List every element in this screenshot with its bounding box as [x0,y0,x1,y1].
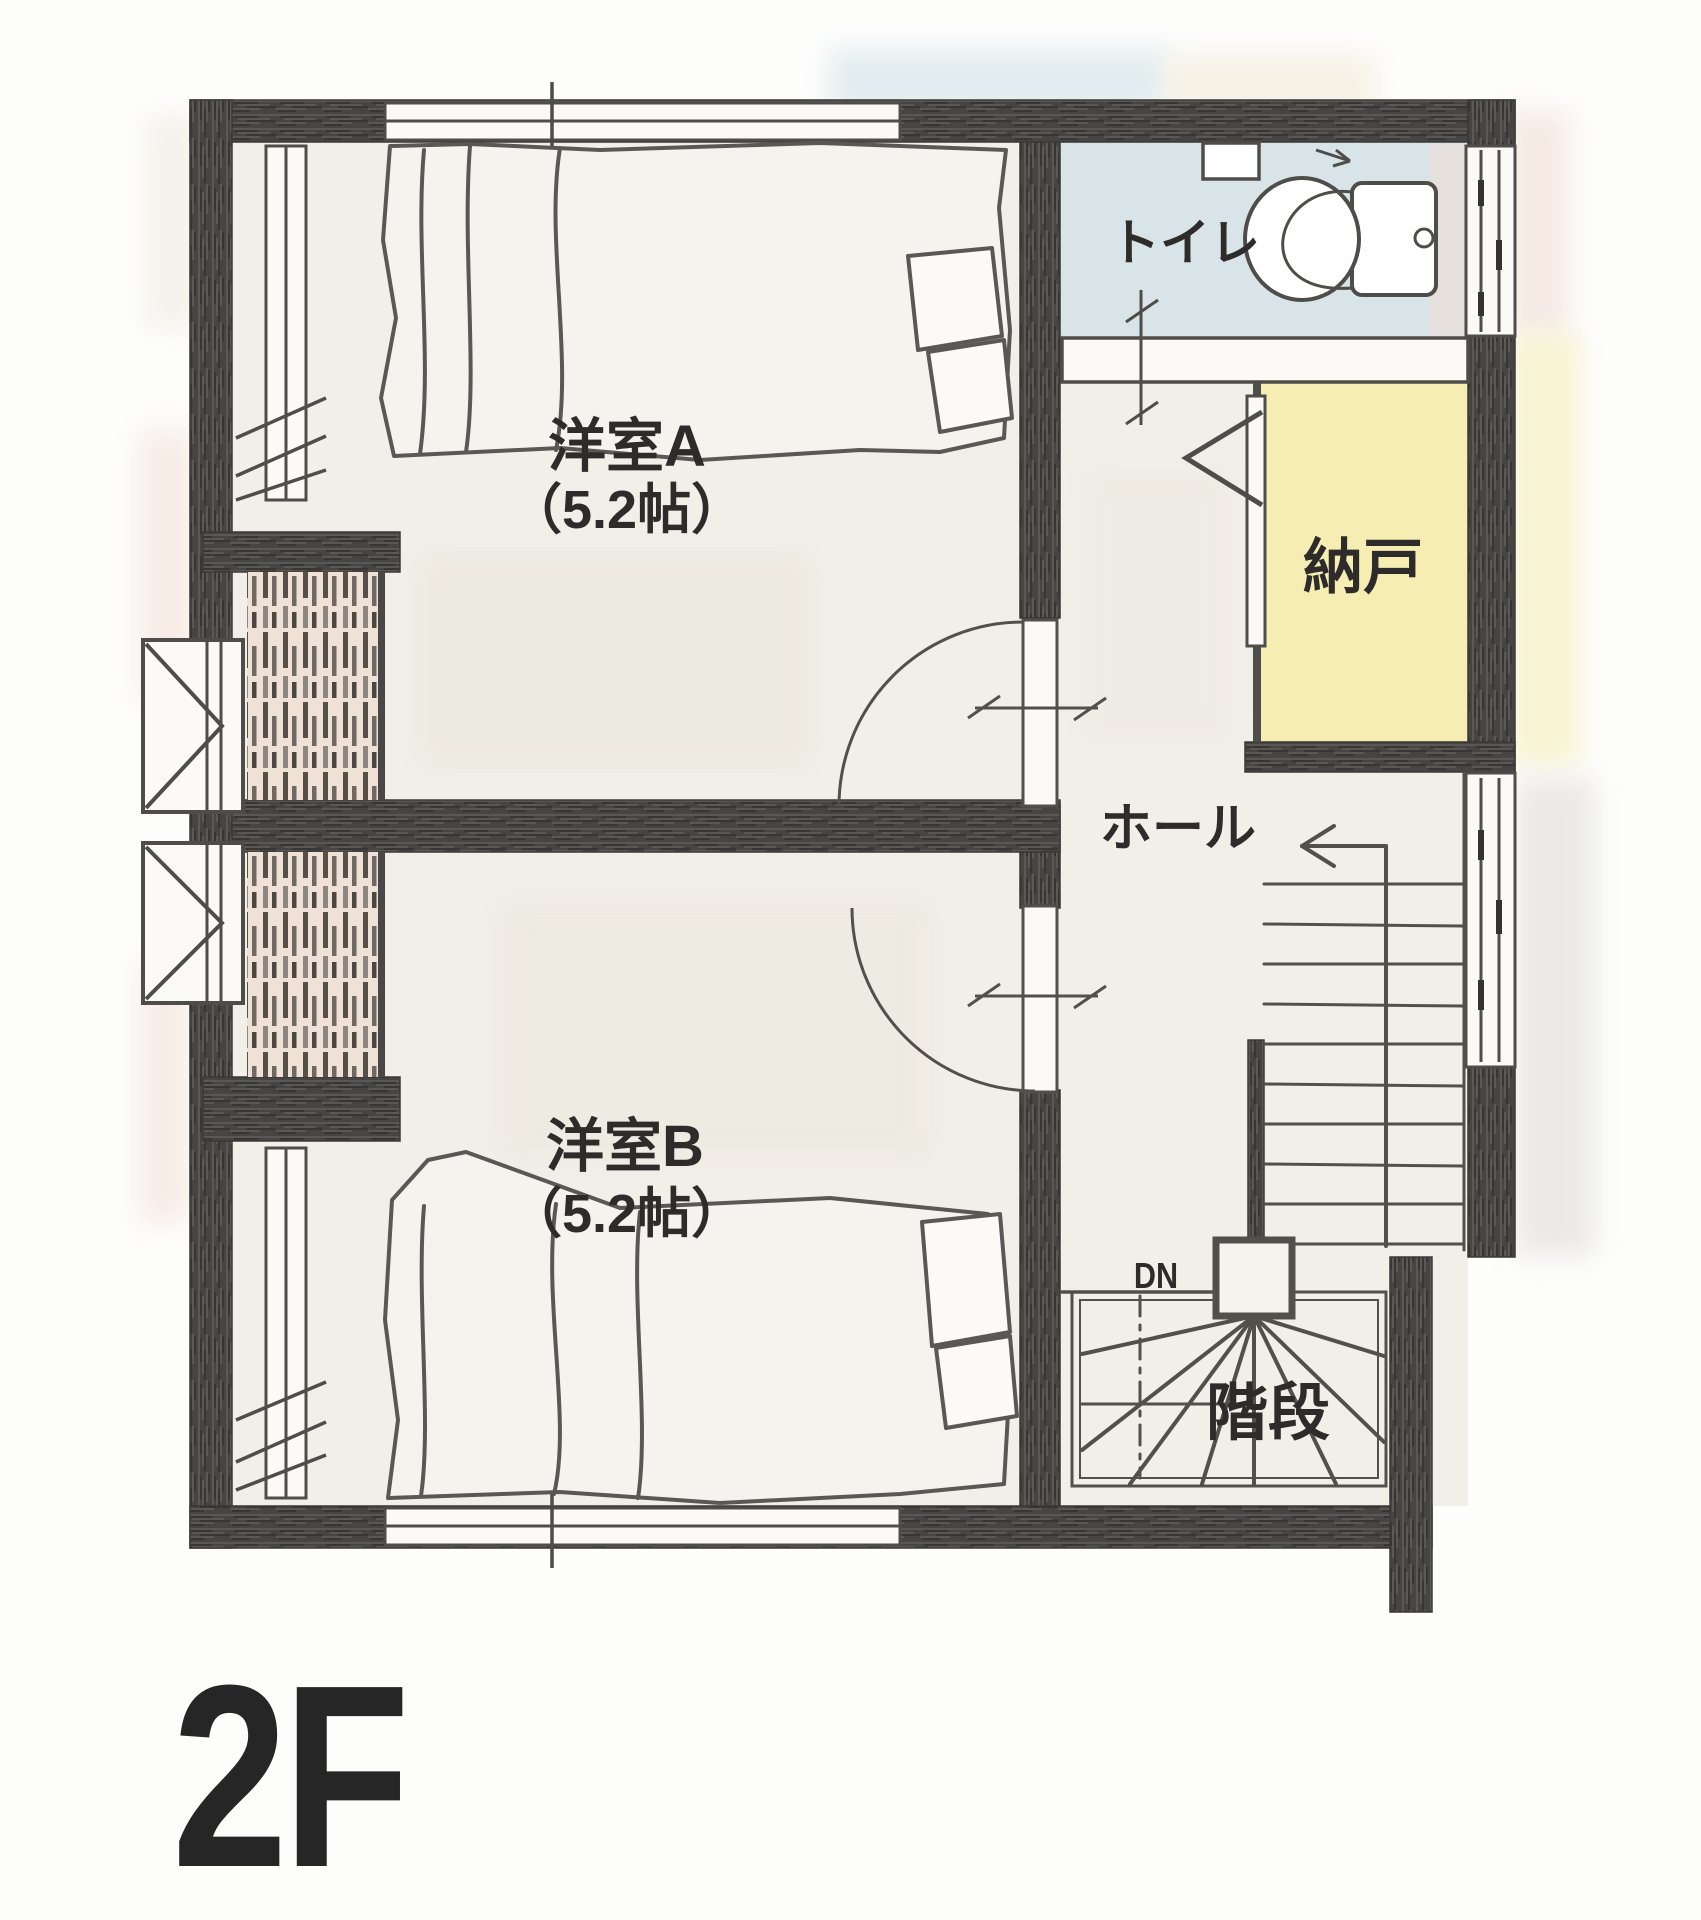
window-right-toilet [1466,146,1515,336]
toilet-fixture [1245,178,1436,300]
closet-a [247,572,379,800]
closet-b-edge [378,852,385,1077]
door-a-leaf [1023,620,1057,806]
wall-middle [232,800,1060,852]
wall-room-a-hall-upper [1020,142,1060,618]
wall-storage-bottom [1245,742,1515,772]
window-right-stairs [1466,773,1515,1067]
hall-label: ホール [1100,800,1256,858]
storage-door-leaf [1247,396,1265,646]
bed-room-a [381,143,1012,460]
floor-title: 2F [172,1631,405,1920]
window-casement-lower [143,843,243,1003]
toilet-partition [1062,338,1468,382]
bed-a-pillow-2 [928,340,1012,432]
window-casement-upper [143,640,243,812]
closet-a-edge [378,572,385,800]
wall-left [190,100,232,1548]
storage-label: 納戸 [1303,534,1423,601]
toilet-flush-button [1415,229,1433,247]
wall-stair-right [1390,1257,1432,1612]
wall-room-b-stairs [1020,1090,1060,1506]
bed-b-pillow-2 [936,1336,1017,1428]
toilet-paper-holder [1203,143,1259,179]
wall-closet-a-top [203,532,400,572]
room-a-label: 洋室A [548,414,706,479]
door-b-leaf [1023,906,1057,1092]
toilet-label: トイレ [1110,215,1260,271]
stairs-newel-post [1216,1240,1292,1316]
wall-room-b-hall-upper [1020,852,1060,908]
room-a-size: （5.2帖） [508,480,745,540]
bed-a-pillow-1 [908,248,1002,350]
stairs-dn-label: DN [1134,1257,1178,1297]
room-b-size: （5.2帖） [508,1184,745,1244]
wall-closet-b-bottom [203,1077,400,1141]
toilet-bowl [1245,178,1359,300]
floor-plan-page: 洋室A （5.2帖） 洋室B （5.2帖） トイレ 納戸 ホール 階段 DN 2… [0,0,1701,1920]
bed-b-pillow-1 [922,1214,1010,1346]
wall-stair-left-short [1248,1040,1264,1254]
closet-b [247,852,379,1077]
stairs-label: 階段 [1206,1379,1330,1448]
floor-plan-drawing: 洋室A （5.2帖） 洋室B （5.2帖） トイレ 納戸 ホール 階段 DN 2… [0,0,1701,1920]
room-b-label: 洋室B [546,1114,704,1179]
